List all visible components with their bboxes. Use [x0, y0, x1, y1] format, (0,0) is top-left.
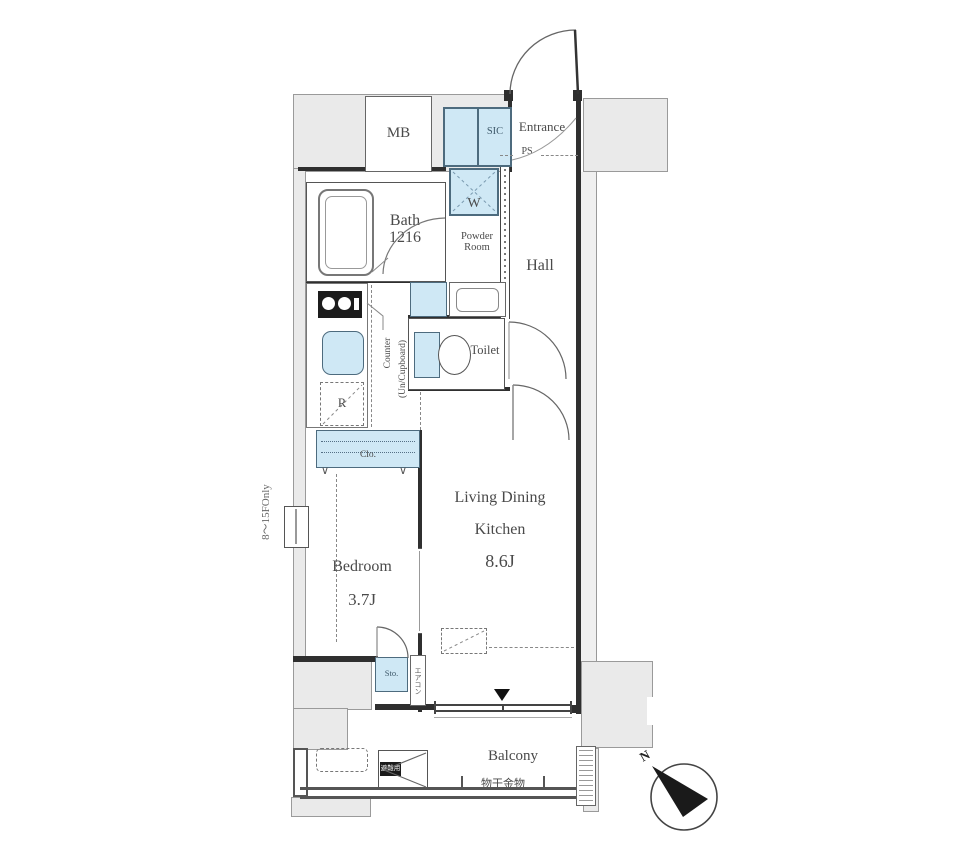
- counter-dash-divider: [371, 285, 372, 427]
- balcony-partition: [576, 746, 596, 806]
- bathtub: [318, 189, 374, 276]
- toilet-label: Toilet: [462, 343, 508, 359]
- toilet-door-arc: [509, 322, 566, 379]
- sliding-door-bedroom: [418, 548, 422, 634]
- structure-block-top-right: [583, 98, 668, 172]
- counter-label-2: (Un/Cupboard): [397, 309, 411, 429]
- wall-right: [576, 96, 581, 714]
- balcony-label: Balcony: [466, 746, 560, 768]
- closet-label: Clo.: [346, 449, 390, 463]
- entrance-door-leaf: [575, 30, 578, 94]
- ps-dash-right: [541, 155, 578, 156]
- bedroom-size-label: 3.7J: [312, 588, 412, 612]
- meter-box: MB: [365, 96, 432, 172]
- floor-access-dashed: [441, 628, 487, 654]
- meter-box-label: MB: [387, 126, 410, 142]
- hanger-pipe-left: ∨: [318, 466, 332, 478]
- wall-bedroom-bottom: [293, 656, 378, 662]
- compass-north-label: N: [633, 745, 657, 768]
- entrance-door-arc: [510, 30, 576, 94]
- bath-label: Bath 1216: [368, 203, 442, 257]
- compass-icon: [651, 764, 717, 830]
- laundry-hardware-label: 物干金物: [468, 778, 538, 792]
- pipe-space-label: PS: [514, 145, 540, 159]
- corridor-dash: [420, 392, 421, 430]
- washbasin: [410, 282, 447, 317]
- counter-label-1: Counter: [382, 303, 396, 403]
- washer-label: W: [449, 193, 499, 215]
- kitchen-sink: [322, 331, 364, 375]
- balcony-wall-left: [293, 748, 308, 797]
- wall-under-storage: [375, 704, 436, 710]
- structure-notch: [647, 697, 656, 725]
- ps-dash-left: [500, 155, 513, 156]
- aircon-space: エアコン: [410, 655, 426, 706]
- entrance-label: Entrance: [506, 118, 578, 136]
- ldk-label-2: Kitchen: [430, 519, 570, 541]
- evacuation-hatch-label: 避難用: [380, 762, 401, 776]
- storage-door-arc: [377, 627, 408, 658]
- ldk-label-1: Living Dining: [430, 487, 570, 509]
- structure-tab-bottom-left: [291, 797, 371, 817]
- hanger-pipe-right: ∨: [396, 466, 410, 478]
- ldk-dash-line: [489, 647, 574, 648]
- toilet-tank: [414, 332, 440, 378]
- ac-outdoor-unit-dashed: [316, 748, 368, 772]
- vanity-cabinet: [449, 282, 506, 317]
- balcony-opening-marker: [494, 689, 510, 701]
- bedroom-label: Bedroom: [312, 556, 412, 578]
- wall-post-entrance-right: [573, 90, 582, 101]
- hall-label: Hall: [514, 255, 566, 277]
- powder-room-label: Powder Room: [445, 226, 509, 258]
- structure-block-bottom-right: [581, 661, 653, 748]
- wall-post-entrance-left: [504, 90, 513, 101]
- floors-note-label: 8〜15FOnly: [260, 457, 274, 567]
- structure-block-bottom-left-b: [293, 708, 348, 750]
- left-wall-strip: [293, 168, 306, 662]
- right-wall-void: [581, 172, 597, 663]
- ldk-size-label: 8.6J: [430, 549, 570, 573]
- fridge-space: R: [320, 382, 364, 426]
- floor-plan: MB SIC Entrance PS Bath 1216 W Powder Ro…: [0, 0, 960, 854]
- structure-block-bottom-left-a: [293, 660, 372, 710]
- storage-label: Sto.: [375, 666, 408, 680]
- stove: [318, 291, 362, 318]
- ldk-door-arc: [513, 385, 569, 440]
- bedroom-window: [284, 506, 309, 548]
